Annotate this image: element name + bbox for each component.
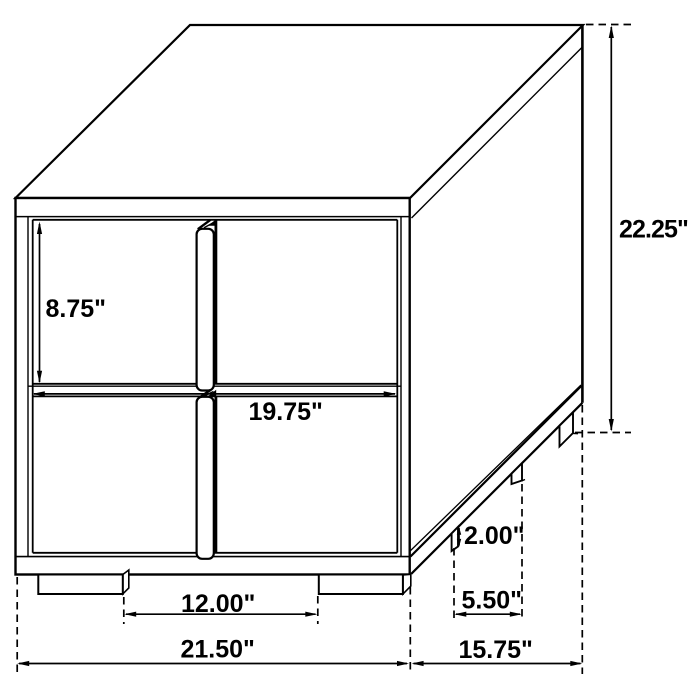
svg-text:21.50": 21.50": [181, 636, 255, 664]
svg-text:15.75": 15.75": [459, 636, 533, 664]
svg-text:8.75": 8.75": [46, 295, 107, 323]
svg-text:12.00": 12.00": [181, 590, 255, 618]
svg-text:2.00": 2.00": [464, 522, 525, 550]
svg-text:5.50": 5.50": [462, 587, 523, 615]
svg-text:19.75": 19.75": [249, 398, 323, 426]
svg-text:22.25": 22.25": [619, 216, 688, 244]
